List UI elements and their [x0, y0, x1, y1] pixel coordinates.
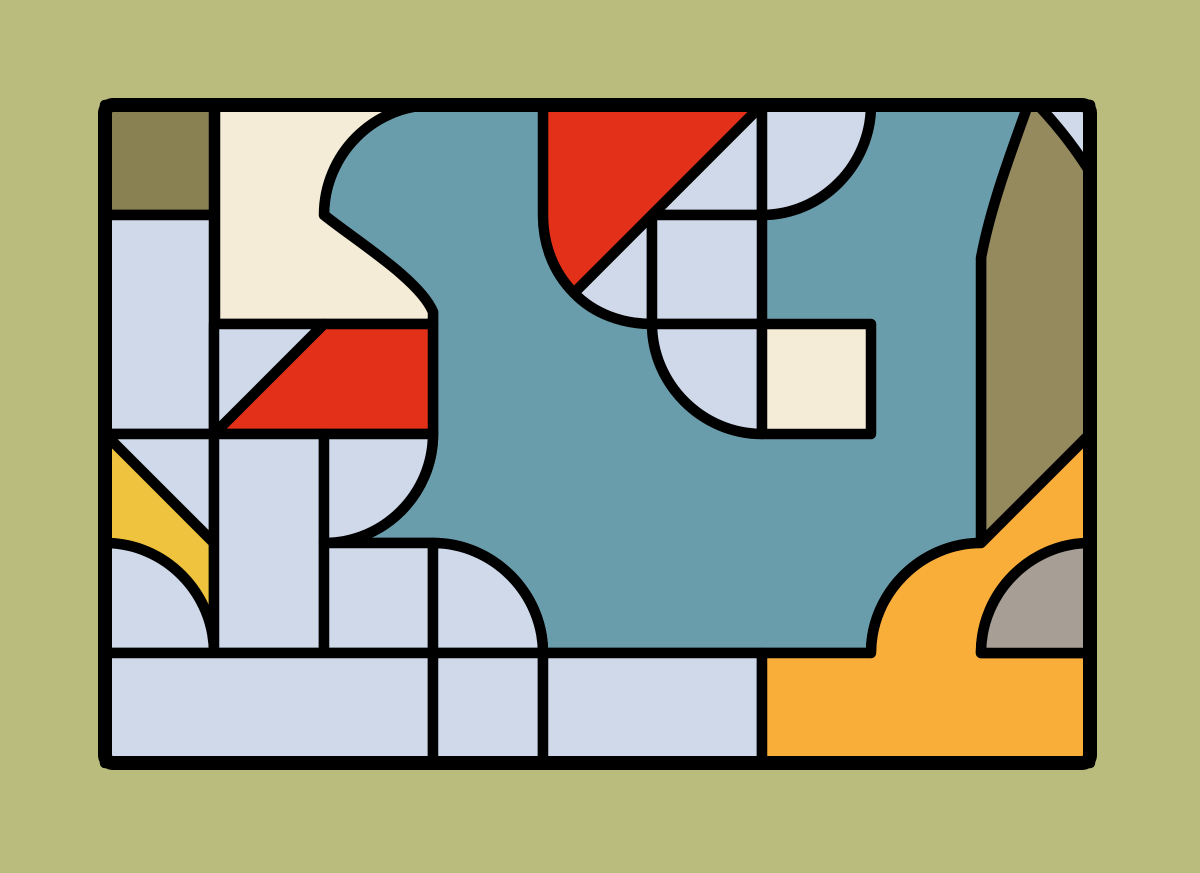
artwork-stage [0, 0, 1200, 873]
stained-glass-artwork [0, 0, 1200, 873]
square-c2r4 [324, 543, 433, 653]
bottom-strip-left [105, 653, 433, 763]
olive-corner-square [105, 105, 214, 215]
left-tall-column [105, 215, 214, 434]
square-c5r1 [652, 215, 762, 324]
bottom-strip-right [543, 653, 762, 763]
bottom-strip-mid [433, 653, 543, 763]
mid-left-column [214, 434, 324, 653]
cream-square-c6r2 [762, 324, 871, 434]
